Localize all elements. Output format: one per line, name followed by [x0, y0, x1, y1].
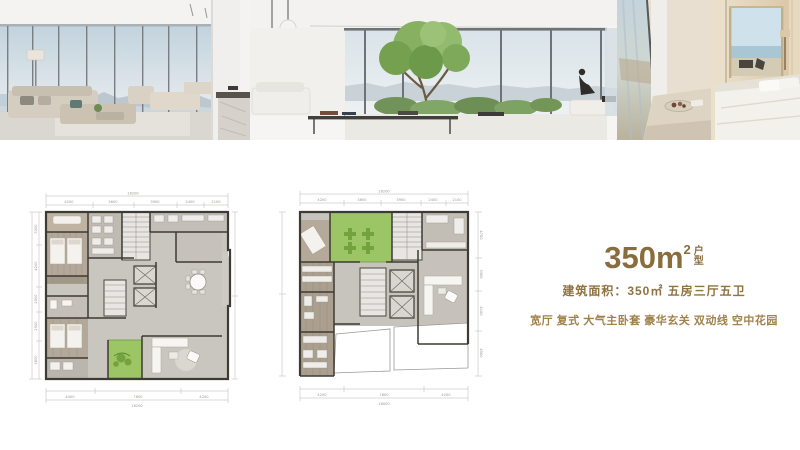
svg-text:4400: 4400	[65, 395, 75, 399]
area-detail-line: 建筑面积：350㎡ 五房三厅五卫	[516, 282, 792, 299]
svg-text:4700: 4700	[479, 230, 483, 240]
brochure-page: 16200 4200 3600 3900 2400 2100 3300 4200…	[0, 0, 800, 450]
svg-text:16200: 16200	[378, 190, 390, 194]
svg-text:2100: 2100	[211, 200, 221, 204]
bedroom-sea-view-photo	[617, 0, 800, 140]
svg-text:3300: 3300	[479, 269, 483, 279]
kitchen-island	[216, 86, 250, 140]
unit-area-title: 350m2 户 型	[516, 243, 792, 273]
svg-text:4200: 4200	[199, 395, 209, 399]
unit-type-label: 户 型	[694, 247, 704, 267]
photo-gallery	[0, 0, 800, 140]
double-height-voids	[334, 323, 468, 373]
svg-text:16200: 16200	[131, 404, 143, 408]
svg-text:4500: 4500	[479, 348, 483, 358]
svg-text:3600: 3600	[357, 198, 367, 202]
svg-text:4200: 4200	[64, 200, 74, 204]
svg-text:7600: 7600	[133, 395, 143, 399]
features-line: 宽厅 复式 大气主卧套 豪华玄关 双动线 空中花园	[516, 312, 792, 328]
svg-text:4200: 4200	[317, 393, 327, 397]
svg-text:2100: 2100	[452, 198, 462, 202]
floorplan-lower-level: 16200 4200 3600 3900 2400 2100 3300 4200…	[26, 188, 244, 410]
svg-text:3900: 3900	[396, 198, 406, 202]
svg-text:2400: 2400	[185, 200, 195, 204]
bedroom-window	[729, 6, 783, 78]
svg-text:7600: 7600	[379, 393, 389, 397]
svg-text:16200: 16200	[127, 192, 139, 196]
living-room-skyline-photo	[0, 0, 250, 140]
bed	[715, 74, 800, 140]
svg-text:4200: 4200	[317, 198, 327, 202]
svg-text:3300: 3300	[34, 224, 38, 234]
svg-text:2400: 2400	[428, 198, 438, 202]
unit-info: 350m2 户 型 建筑面积：350㎡ 五房三厅五卫 宽厅 复式 大气主卧套 豪…	[516, 243, 792, 328]
svg-text:4200: 4200	[34, 261, 38, 271]
svg-text:3600: 3600	[108, 200, 118, 204]
svg-text:3900: 3900	[150, 200, 160, 204]
svg-text:16000: 16000	[378, 402, 390, 406]
area-number: 350m2	[604, 243, 691, 273]
svg-text:4100: 4100	[479, 306, 483, 316]
svg-text:2900: 2900	[34, 321, 38, 331]
svg-text:2500: 2500	[34, 294, 38, 304]
terrace-tree-photo	[250, 0, 617, 140]
svg-text:4200: 4200	[441, 393, 451, 397]
svg-text:3800: 3800	[34, 355, 38, 365]
floorplan-upper-level: 16200 4200 3600 3900 2400 2100 4700 3300…	[272, 184, 492, 410]
